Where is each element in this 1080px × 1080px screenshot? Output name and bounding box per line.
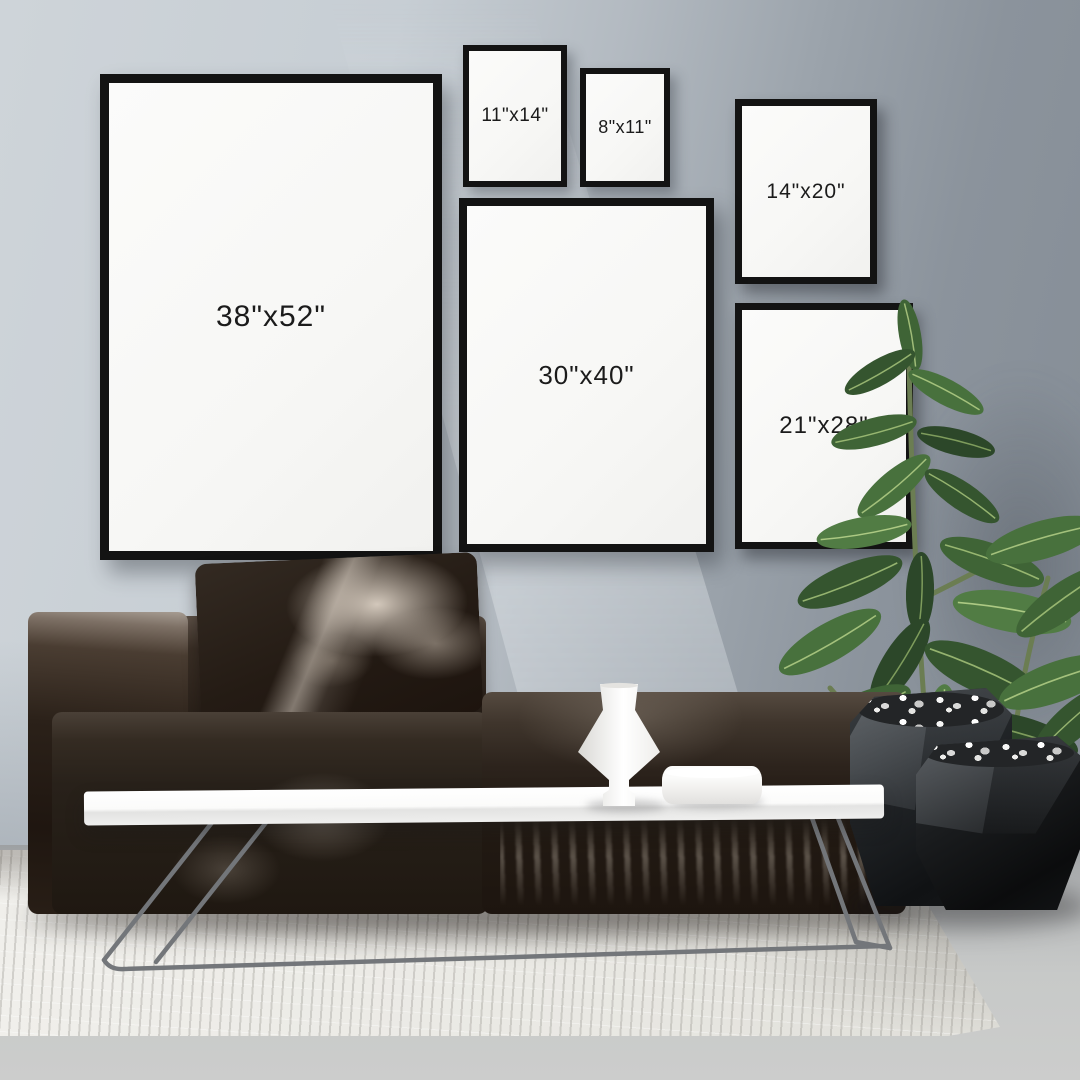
coffee-table-top bbox=[84, 785, 884, 826]
vase bbox=[576, 682, 664, 810]
scene-root: 38"x52" 11"x14" 8"x11" 14"x20" 30"x40" 2… bbox=[0, 0, 1080, 1080]
bowl bbox=[662, 766, 762, 804]
coffee-table-legs bbox=[0, 0, 1080, 1080]
